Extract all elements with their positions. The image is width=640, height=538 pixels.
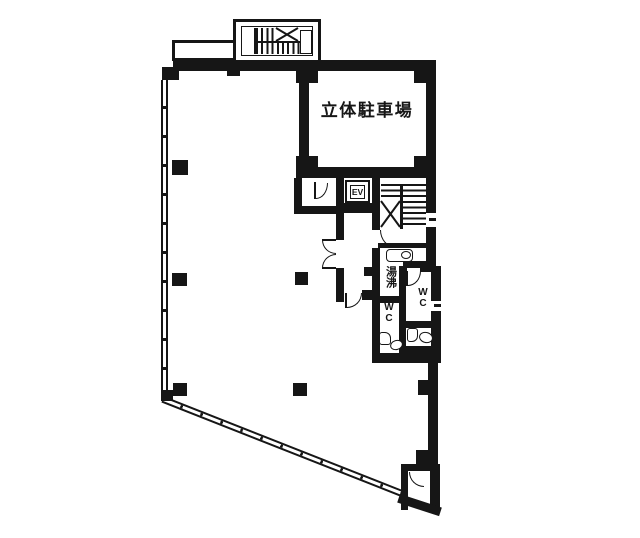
elevator-label: EV [350, 185, 365, 199]
wall-east-wc-upper [431, 267, 441, 301]
stair-landing [300, 30, 312, 54]
parking-room-label: 立体駐車場 [306, 97, 428, 125]
window-tick-wc [434, 304, 441, 307]
stair-treads [256, 42, 301, 54]
pillar [414, 156, 436, 178]
pillar [293, 383, 307, 396]
pillar [295, 272, 308, 285]
toilet-tank [379, 332, 391, 345]
stair-treads [256, 28, 275, 41]
stair-cross-mark [275, 27, 299, 42]
wall-pillar-east [418, 380, 436, 395]
pillar [296, 60, 318, 83]
door-arc-wc-right [408, 271, 421, 286]
stair-treads [381, 184, 400, 199]
door-arc-double-top [322, 240, 336, 254]
wall-pier [227, 60, 240, 76]
pillar [173, 383, 187, 396]
wall-entrance-north [401, 464, 433, 471]
door-arc-vestibule [316, 183, 328, 199]
wall-stub [364, 267, 373, 276]
pillar [296, 156, 318, 178]
wc-right-label: WC [417, 287, 428, 309]
door-arc-evhall [347, 293, 362, 308]
wall-wc-right-south [404, 321, 441, 328]
window-tick-east [429, 218, 436, 221]
window-wall-diagonal [161, 396, 403, 497]
wall-evhall-west [336, 214, 344, 240]
door-arc-double-bottom [322, 254, 336, 268]
stair-treads [403, 184, 426, 229]
wall-core-west [372, 248, 380, 363]
wall-east-lower [428, 363, 438, 451]
wall-stair-west [372, 214, 380, 230]
wall-wc-north [420, 266, 441, 272]
wall-core-south [372, 353, 441, 363]
sink-bowl [401, 251, 411, 259]
wall-ev-door [336, 203, 380, 213]
window-wall-west [161, 80, 168, 394]
door-arc-entrance [409, 472, 424, 487]
exterior-balcony [172, 40, 238, 61]
toilet-tank [407, 328, 418, 342]
wc-left-label: WC [383, 302, 394, 324]
wall-evhall-west [336, 268, 344, 302]
wall-corner-step [162, 67, 179, 80]
pillar [172, 273, 187, 286]
floor-plan: 立体駐車場 EV 湯沸 WC WC [0, 0, 640, 538]
wall-corridor-south [378, 243, 428, 248]
stair-cross-mark [380, 200, 401, 228]
pillar [414, 60, 436, 83]
pillar [172, 160, 188, 175]
water-heating-label: 湯沸 [384, 266, 396, 288]
